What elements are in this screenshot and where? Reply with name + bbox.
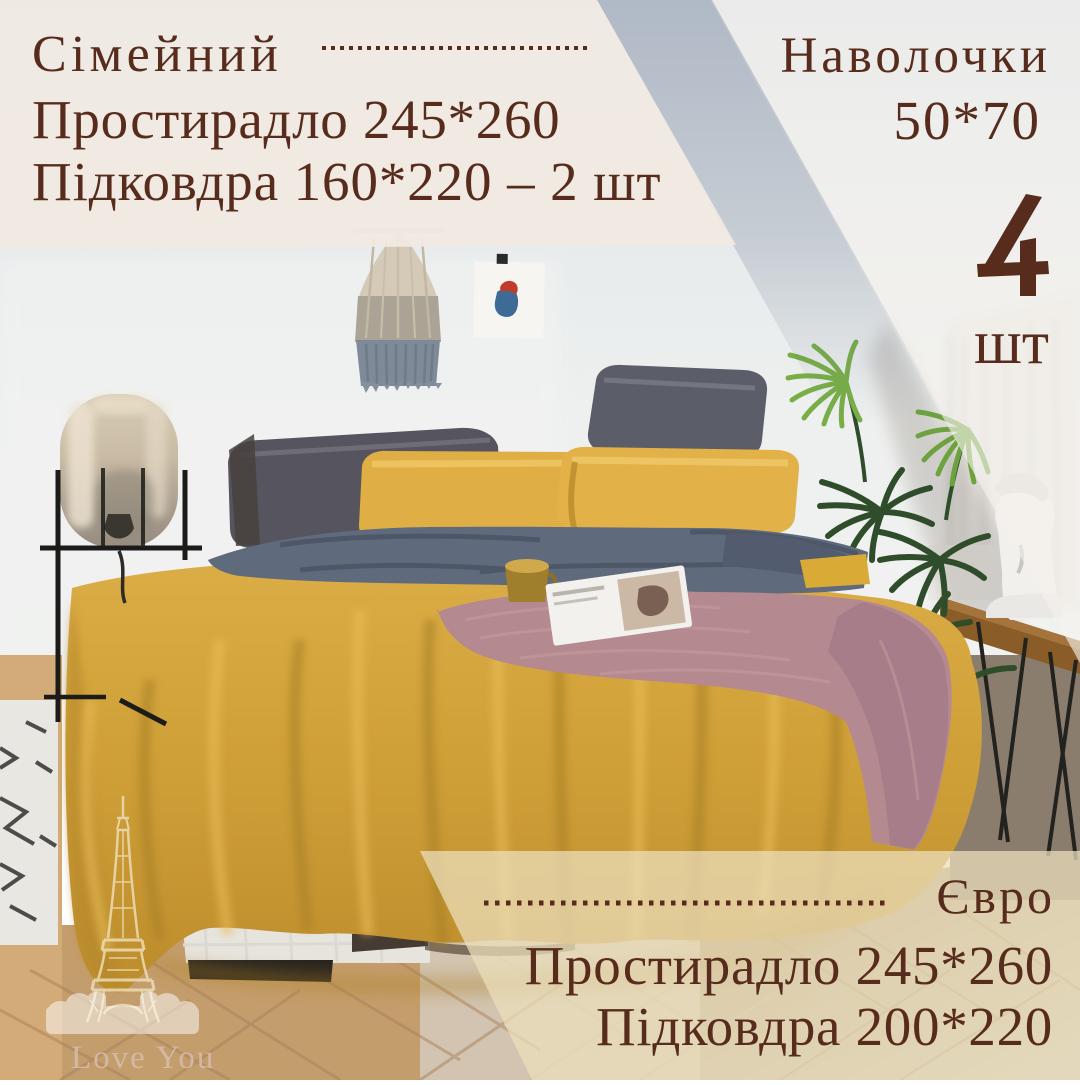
svg-text:Простирадло 245*260: Простирадло 245*260 bbox=[525, 935, 1053, 996]
svg-text:Сімейний: Сімейний bbox=[32, 26, 282, 83]
svg-text:Наволочки: Наволочки bbox=[781, 28, 1051, 84]
svg-text:Простирадло 245*260: Простирадло 245*260 bbox=[32, 89, 560, 150]
svg-text:Підковдра 160*220 – 2 шт: Підковдра 160*220 – 2 шт bbox=[32, 151, 661, 212]
svg-text:Love You: Love You bbox=[71, 1040, 215, 1076]
svg-text:Підковдра 200*220: Підковдра 200*220 bbox=[596, 996, 1053, 1057]
svg-text:шт: шт bbox=[974, 309, 1049, 377]
svg-text:50*70: 50*70 bbox=[894, 90, 1042, 151]
svg-text:Євро: Євро bbox=[936, 868, 1055, 924]
